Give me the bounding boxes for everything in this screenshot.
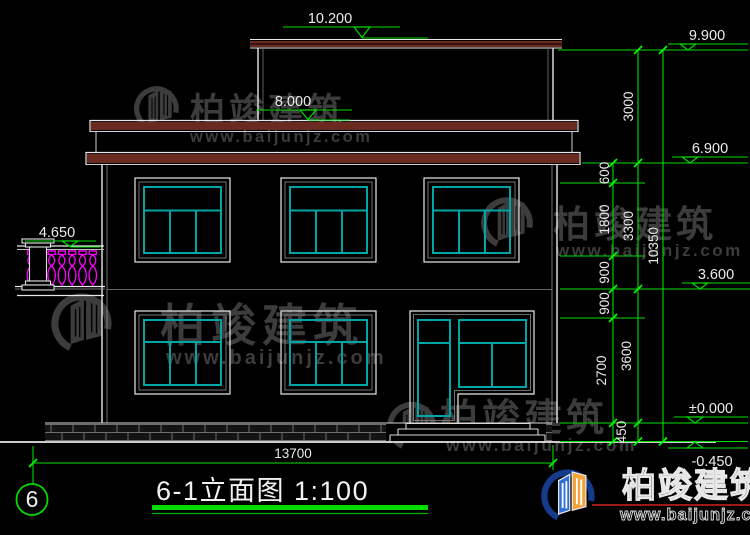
level-marker-10200: 10.200	[283, 11, 428, 38]
level-label: 8.000	[275, 94, 311, 110]
level-label: 9.900	[689, 28, 725, 44]
dim-900-a: 900	[597, 261, 612, 284]
watermark-mid-left: 柏竣建筑 www.baijunjz.com	[46, 288, 386, 369]
level-marker-9900: 9.900	[648, 28, 748, 50]
sheet-number: 6	[26, 486, 39, 512]
level-marker-6900: 6.900	[584, 141, 748, 163]
title-block: 6 6-1立面图 1:100	[17, 476, 429, 515]
level-marker-3600: 3.600	[650, 267, 750, 289]
watermark-url: www.baijunjz.com	[165, 347, 387, 369]
steps-area	[386, 424, 546, 442]
window-2f-center	[281, 178, 376, 262]
level-marker-neg0450: -0.450	[650, 442, 748, 471]
dim-600: 600	[597, 162, 612, 185]
level-label: 6.900	[692, 141, 728, 157]
watermark-top-left: 柏竣建筑 www.baijunjz.com	[130, 82, 372, 146]
dim-1800: 1800	[597, 204, 612, 234]
dim-3600: 3600	[619, 341, 634, 371]
brand-logo-icon	[537, 465, 600, 528]
level-label: ±0.000	[689, 401, 733, 417]
dim-2700: 2700	[594, 355, 609, 385]
window-2f-left	[135, 178, 230, 262]
drawing-title: 6-1立面图 1:100	[156, 476, 369, 506]
footer-brand: 柏竣建筑 www.baijunjz.com	[537, 465, 750, 528]
watermark-brand: 柏竣建筑	[160, 300, 364, 351]
dim-450: 450	[614, 421, 629, 444]
dim-13700: 13700	[274, 446, 312, 461]
watermark-url: www.baijunjz.com	[189, 128, 372, 146]
cad-elevation-drawing: 柏竣建筑 www.baijunjz.com 柏竣建筑 www.baijunjz.…	[0, 0, 750, 535]
level-label: 4.650	[39, 225, 75, 241]
watermark-logo-icon	[46, 288, 117, 359]
brand-url: www.baijunjz.com	[619, 506, 750, 524]
level-label: 10.200	[308, 11, 352, 27]
level-label: 3.600	[698, 267, 734, 283]
brand-name: 柏竣建筑	[622, 466, 750, 505]
title-underline-thick	[152, 505, 428, 510]
dim-10350: 10350	[646, 227, 661, 265]
dim-3000: 3000	[621, 91, 636, 121]
dim-3300: 3300	[621, 211, 636, 241]
dim-900-b: 900	[597, 292, 612, 315]
balcony-pillar	[22, 239, 54, 290]
drawing-canvas: 柏竣建筑 www.baijunjz.com 柏竣建筑 www.baijunjz.…	[0, 0, 750, 535]
